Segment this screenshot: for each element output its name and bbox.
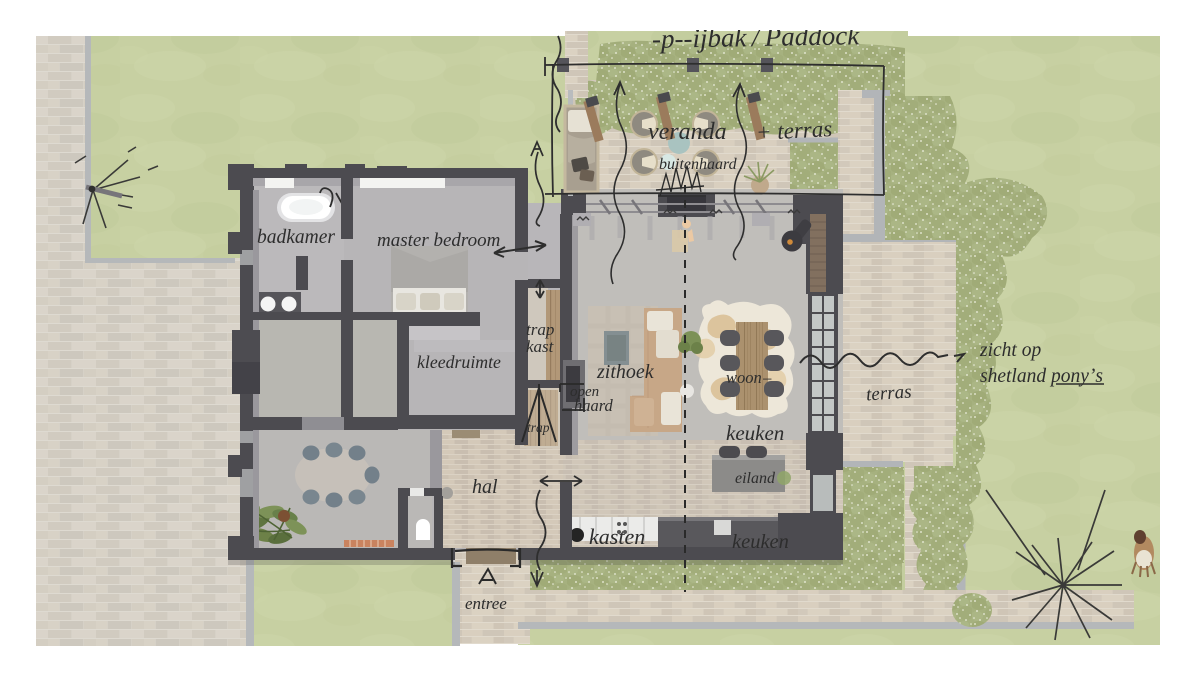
svg-text:entree: entree bbox=[465, 594, 507, 613]
svg-text:veranda: veranda bbox=[648, 119, 727, 145]
svg-text:eiland: eiland bbox=[735, 470, 776, 487]
svg-text:keuken: keuken bbox=[726, 421, 784, 445]
svg-text:hal: hal bbox=[472, 476, 498, 498]
svg-text:master bedroom: master bedroom bbox=[377, 230, 500, 251]
svg-text:badkamer: badkamer bbox=[257, 227, 335, 248]
svg-text:buitenhaard: buitenhaard bbox=[659, 156, 738, 173]
svg-text:terras: terras bbox=[865, 381, 912, 405]
svg-text:keuken: keuken bbox=[732, 531, 789, 553]
svg-text:kleedruimte: kleedruimte bbox=[417, 352, 501, 372]
svg-text:woon –: woon – bbox=[726, 368, 772, 387]
svg-text:zithoek: zithoek bbox=[596, 361, 655, 383]
svg-text:kasten: kasten bbox=[589, 524, 645, 549]
svg-text:trap: trap bbox=[527, 420, 550, 435]
svg-text:kast: kast bbox=[526, 337, 555, 356]
svg-text:zicht op: zicht op bbox=[979, 340, 1041, 361]
svg-text:haard: haard bbox=[574, 396, 614, 415]
svg-text:+ terras: + terras bbox=[755, 116, 832, 145]
